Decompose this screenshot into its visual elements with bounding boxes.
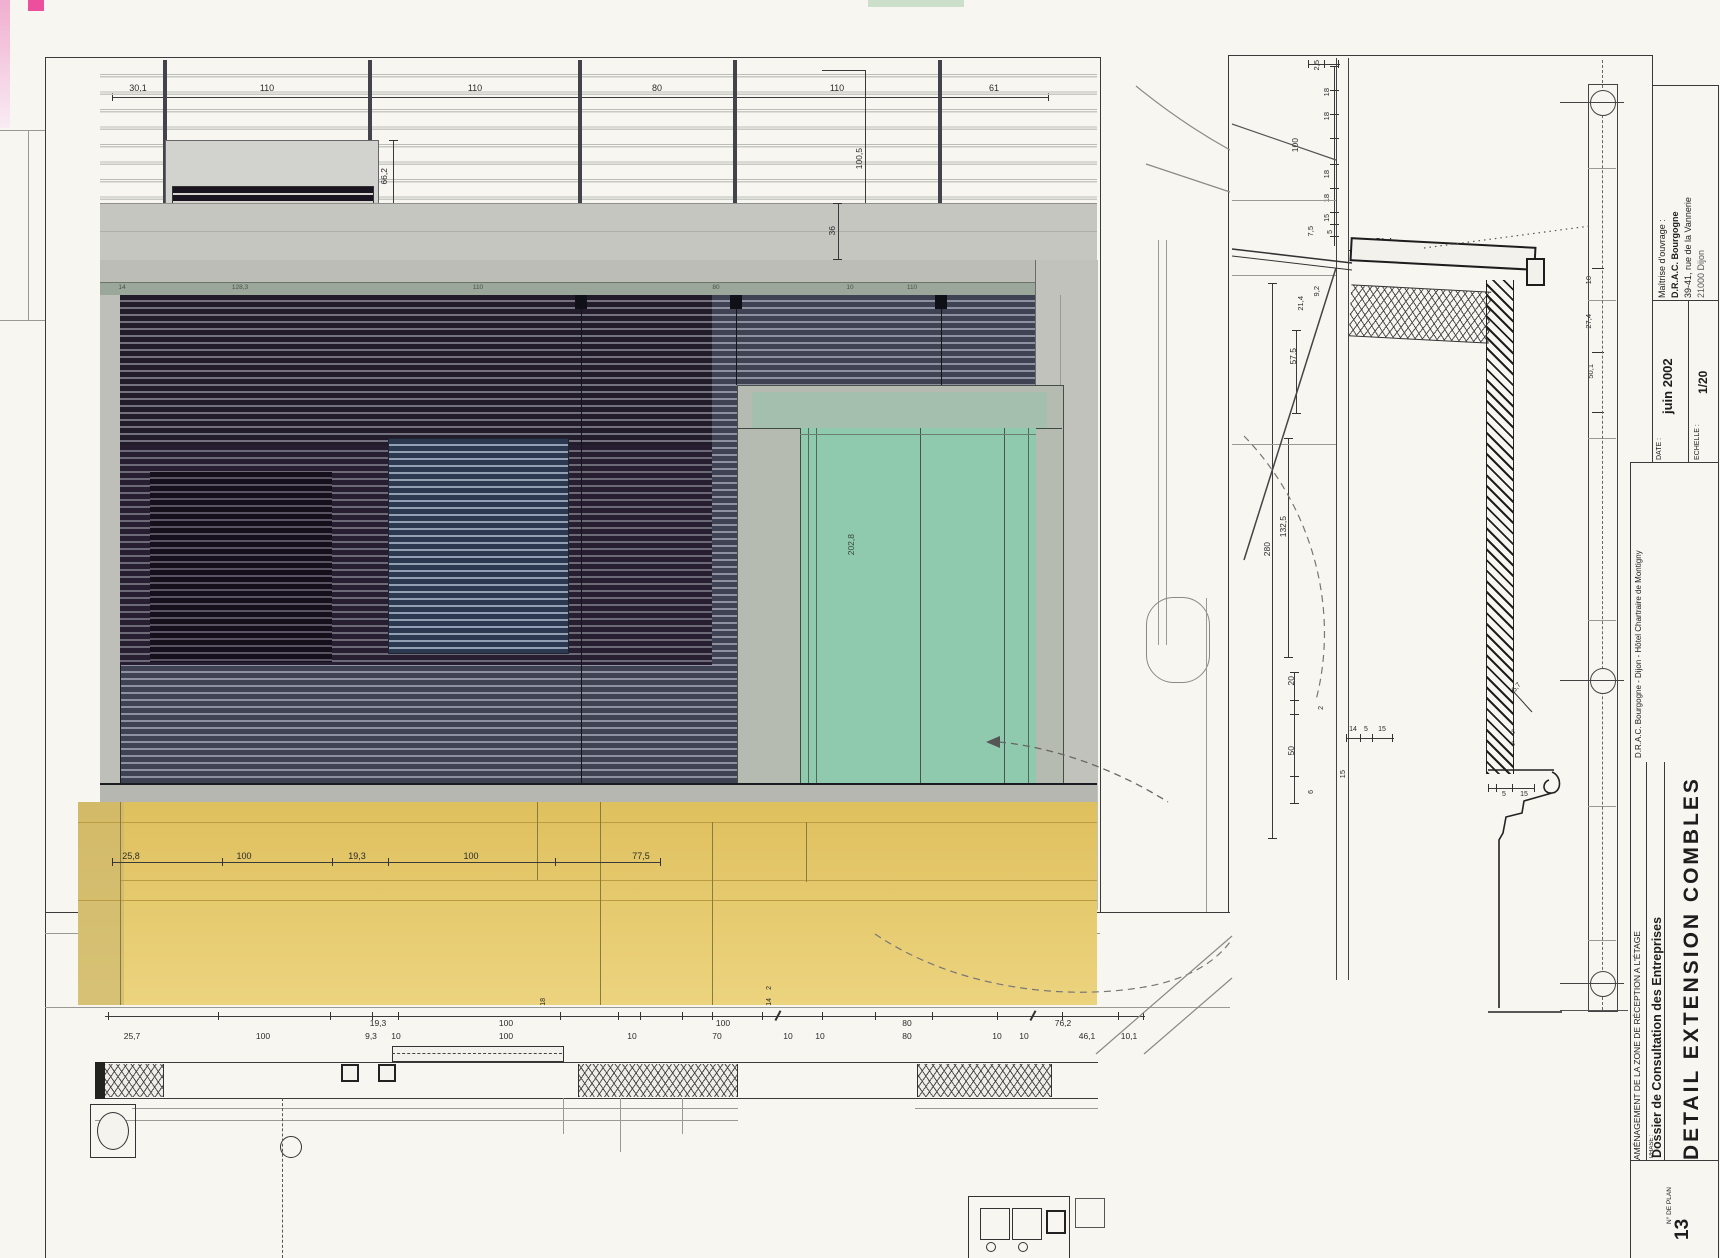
scale-value: 1/20 [1696,338,1710,394]
owner-address: 39-41, rue de la Vannerie [1682,88,1695,298]
dotted-leader [1424,226,1590,248]
pointer-arrowhead [986,736,1000,748]
owner-label: Maîtrise d'ouvrage : [1656,88,1669,298]
phase-value: Dossier de Consultation des Entreprises [1650,838,1664,1158]
title-block-border [1646,762,1647,1160]
owner-name: D.R.A.C. Bourgogne [1669,88,1682,298]
section-swing-arc [1244,436,1324,700]
date-label: DATE : [1656,418,1663,460]
title-block-border [1688,300,1689,462]
title-block-border [1652,300,1718,301]
owner-city: 21000 Dijon [1695,88,1708,298]
roof-slope-line [1232,124,1336,160]
gutter-profile [1488,770,1562,1012]
roof-plane-line [1232,256,1352,270]
dim-diag-tick [1512,690,1532,712]
owner-block: Maîtrise d'ouvrage : D.R.A.C. Bourgogne … [1656,88,1708,298]
rafter-line [1244,268,1336,560]
plan-number: 13 [1672,1196,1694,1240]
fragment-line [1146,164,1230,192]
fragment-curve [1136,86,1230,150]
project-line: D.R.A.C. Bourgogne - Dijon - Hôtel Chart… [1634,468,1643,758]
title-block-border [1630,462,1631,1258]
zone-line: AMÉNAGEMENT DE LA ZONE DE RÉCEPTION A L'… [1632,765,1642,1160]
title-block-border [1664,762,1665,1160]
title-block-border [1718,85,1719,1258]
title-block-border [1652,85,1718,86]
break-line [1144,978,1232,1054]
pointer-curve [999,742,1168,802]
drawing-title: DETAIL EXTENSION COMBLES [1680,595,1704,1160]
title-block-border [1630,1160,1718,1161]
scale-label: ECHELLE : [1694,412,1701,460]
drawing-sheet: 30,1 110 110 80 110 61 66,2 14 128,3 110… [0,0,1720,1258]
roof-plane-line [1232,249,1352,263]
title-block-border [1630,462,1718,463]
title-block-border [1652,55,1653,462]
overlay-curves [0,0,1720,1258]
date-value: juin 2002 [1660,318,1675,414]
